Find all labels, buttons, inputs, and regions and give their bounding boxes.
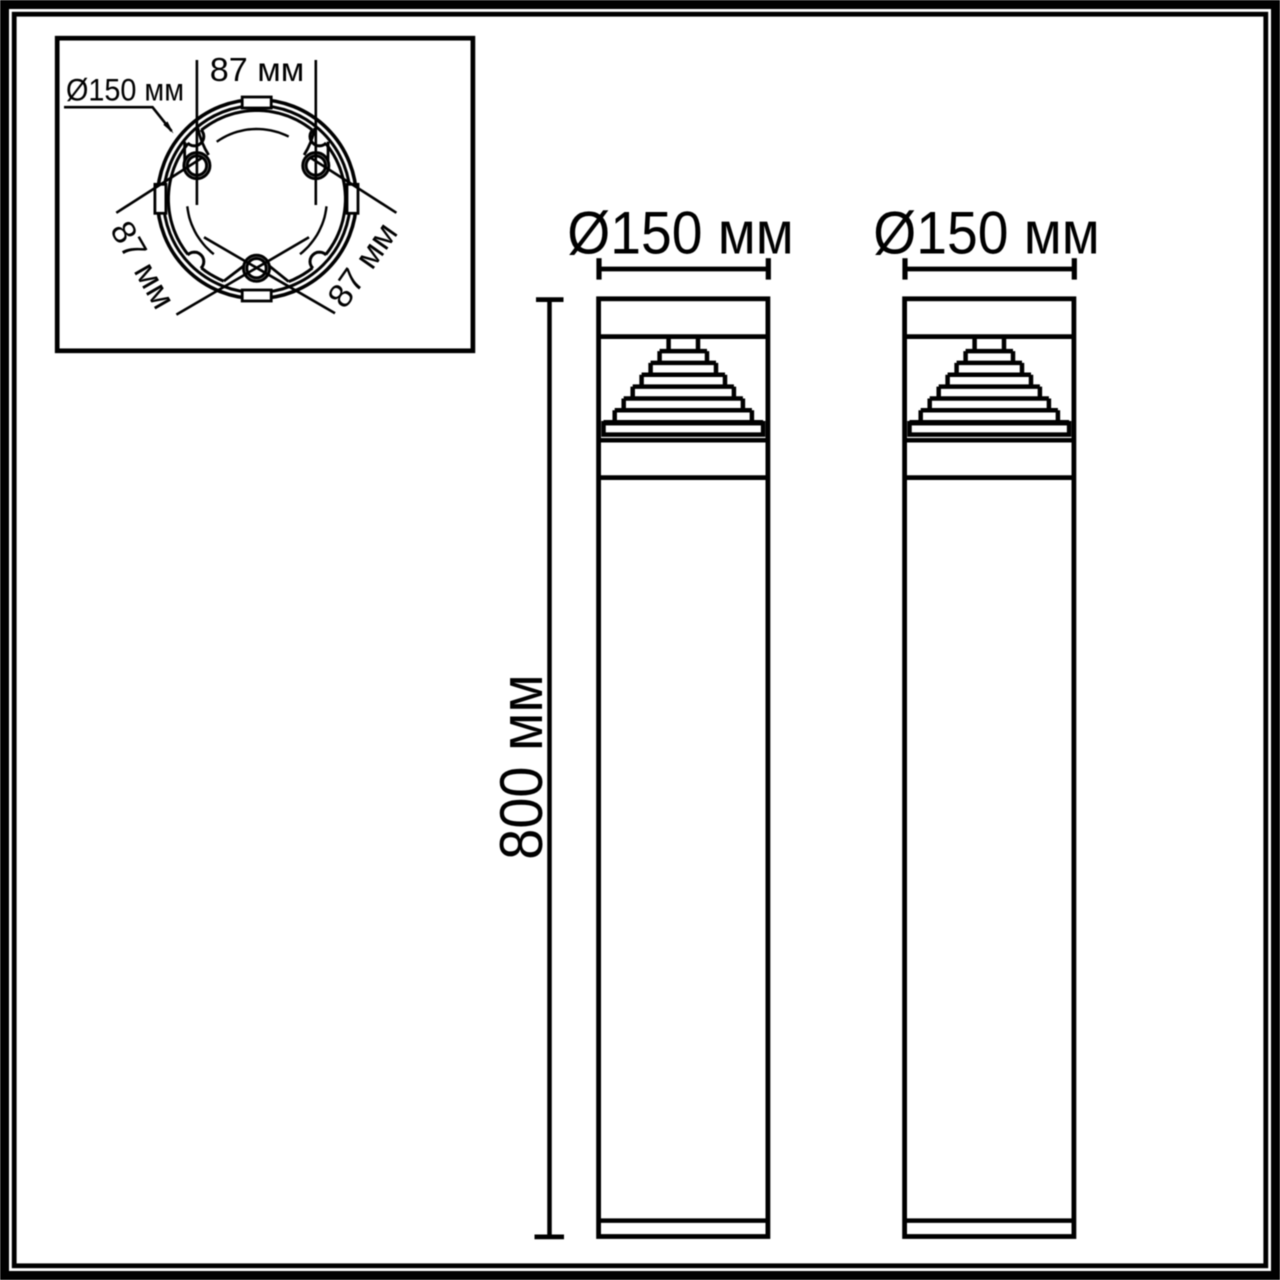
svg-text:Ø150 мм: Ø150 мм	[873, 199, 1099, 267]
svg-text:Ø150 мм: Ø150 мм	[66, 72, 184, 108]
svg-text:800 мм: 800 мм	[487, 674, 555, 859]
svg-text:87 мм: 87 мм	[210, 52, 305, 89]
svg-text:Ø150 мм: Ø150 мм	[567, 199, 793, 267]
